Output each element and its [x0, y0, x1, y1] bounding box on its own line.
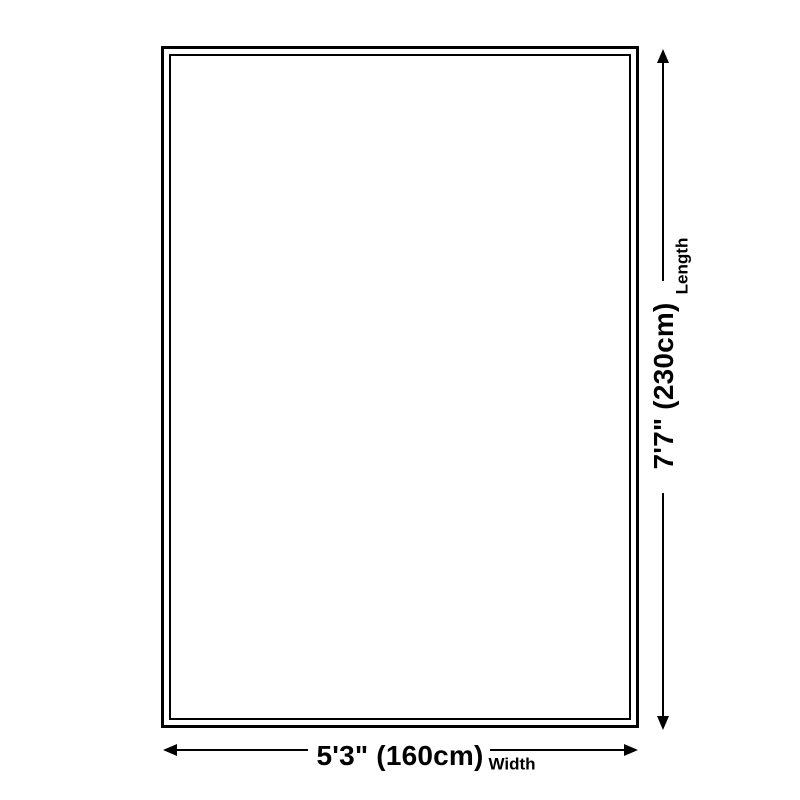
length-axis-label: Length — [674, 238, 691, 295]
rug-outline-inner — [169, 54, 631, 720]
rug-dimension-diagram: 7'7" (230cm) Length 5'3" (160cm) Width — [0, 0, 800, 800]
length-dimension-line-lower — [662, 493, 664, 717]
arrow-down-icon — [657, 716, 669, 730]
width-dimension-line-left — [175, 749, 308, 751]
rug-outline-outer — [161, 46, 639, 728]
width-value-label: 5'3" (160cm) — [316, 742, 483, 770]
length-dimension-line-upper — [662, 59, 664, 281]
length-value-label: 7'7" (230cm) — [650, 302, 678, 469]
width-axis-label: Width — [488, 756, 535, 773]
width-dimension-line-right — [490, 749, 624, 751]
arrow-right-icon — [624, 744, 638, 756]
